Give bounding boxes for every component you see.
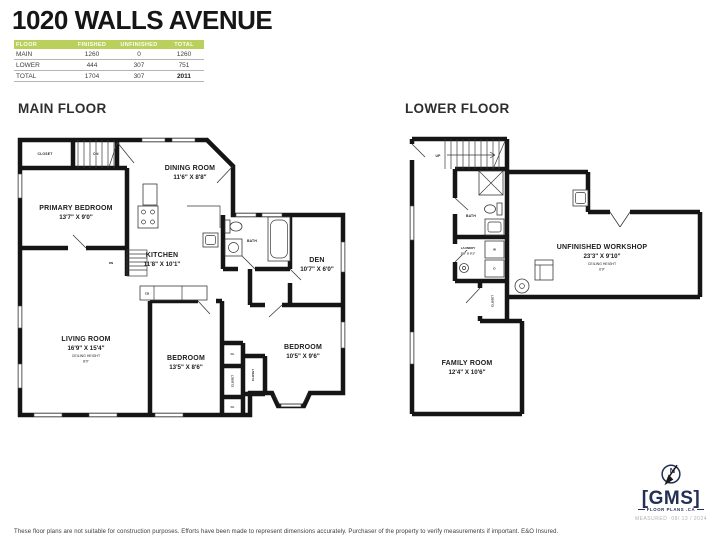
stairs-dn2-label: DN xyxy=(109,261,113,265)
area-table-header-row: FLOOR FINISHED UNFINISHED TOTAL xyxy=(14,40,204,49)
bedroom1-name: BEDROOM xyxy=(167,355,205,362)
logo-bracket-left: [ xyxy=(642,488,649,509)
shower-icon xyxy=(479,171,503,195)
bath-label: BATH xyxy=(247,239,257,243)
table-row-total: TOTAL 1704 307 2011 xyxy=(14,71,204,82)
primary-bedroom-dims: 13'7" X 9'0" xyxy=(59,214,93,221)
floor-plan-page: 1020 WALLS AVENUE FLOOR FINISHED UNFINIS… xyxy=(0,0,720,556)
bath-sink-icon xyxy=(225,239,242,256)
disclaimer-text: These floor plans are not suitable for c… xyxy=(14,529,558,535)
logo-wordmark: [GMS] xyxy=(628,490,714,507)
cell-total: 2011 xyxy=(164,71,204,82)
main-floor-plan: CLOSET DN DINING ROOM 11'6" X 8'8" PRIMA… xyxy=(14,136,350,422)
measured-label: MEASURED xyxy=(635,516,667,522)
logo-tagline-text: FLOOR PLANS .CA xyxy=(647,507,695,512)
bedroom2-dims: 10'5" X 9'6" xyxy=(286,353,320,360)
bedroom2-name: BEDROOM xyxy=(284,344,322,351)
main-floor-heading: MAIN FLOOR xyxy=(18,101,107,116)
cell-unfinished: 0 xyxy=(114,49,164,60)
workshop-dims: 23'3" X 9'10" xyxy=(583,253,620,260)
cell-unfinished: 307 xyxy=(114,71,164,82)
dining-room-name: DINING ROOM xyxy=(165,165,215,172)
closet-right-label: CLOSET xyxy=(251,369,255,381)
lower-closet-label: CLOSET xyxy=(491,295,495,307)
table-row-main: MAIN 1260 0 1260 xyxy=(14,49,204,60)
main-floor-labels: CLOSET DN DINING ROOM 11'6" X 8'8" PRIMA… xyxy=(38,152,334,409)
bay-window xyxy=(274,395,308,404)
cell-floor: MAIN xyxy=(14,49,70,60)
column-header-floor: FLOOR xyxy=(14,40,70,49)
furnace-icon xyxy=(535,260,553,280)
closet-left-label: CLOSET xyxy=(231,375,235,387)
stairs-up-label: UP xyxy=(435,154,441,158)
kitchen-dims: 11'8" X 10'1" xyxy=(144,261,181,268)
area-table: FLOOR FINISHED UNFINISHED TOTAL MAIN 126… xyxy=(14,40,204,82)
laundry-tub-icon xyxy=(460,264,469,273)
page-title: 1020 WALLS AVENUE xyxy=(12,5,272,36)
cl-bottom-label: CL xyxy=(231,405,235,409)
washer-label: W xyxy=(493,248,496,252)
toilet-icon xyxy=(225,220,242,233)
laundry-name: LAUNDRY xyxy=(461,246,476,250)
cell-finished: 444 xyxy=(70,60,114,71)
column-header-finished: FINISHED xyxy=(70,40,114,49)
family-room-name: FAMILY ROOM xyxy=(442,360,493,367)
primary-bedroom-name: PRIMARY BEDROOM xyxy=(39,205,112,212)
stove-icon xyxy=(138,184,158,228)
water-heater-icon xyxy=(515,279,529,293)
cell-floor: TOTAL xyxy=(14,71,70,82)
workshop-name: UNFINISHED WORKSHOP xyxy=(557,244,648,251)
cell-total: 751 xyxy=(164,60,204,71)
living-ceiling-label: CEILING HEIGHT xyxy=(72,354,101,358)
living-room-dims: 16'9" X 15'4" xyxy=(67,345,104,352)
main-floor-walls xyxy=(20,140,343,415)
cell-finished: 1704 xyxy=(70,71,114,82)
lower-stairs-up-icon xyxy=(445,139,505,169)
cell-unfinished: 307 xyxy=(114,60,164,71)
column-header-total: TOTAL xyxy=(164,40,204,49)
bedroom1-dims: 13'5" X 8'6" xyxy=(169,364,203,371)
lower-sink-icon xyxy=(485,219,504,235)
measured-line: MEASURED08/ 13 / 2024 xyxy=(628,516,714,522)
lower-floor-plan: UP BATH LAUNDRY 5'8" X 5'1" W D CLOSET U… xyxy=(405,136,705,422)
closet-label: CLOSET xyxy=(38,152,54,156)
kitchen-name: KITCHEN xyxy=(146,252,179,259)
measured-date: 08/ 13 / 2024 xyxy=(671,516,707,522)
lower-toilet-icon xyxy=(485,203,503,215)
living-ceiling-value: 8'0" xyxy=(83,360,90,364)
lower-bath-label: BATH xyxy=(466,214,476,218)
bathtub-icon xyxy=(268,217,290,261)
workshop-sink-icon xyxy=(573,190,588,206)
stairs-dn-label: DN xyxy=(93,152,99,156)
den-dims: 10'7" X 6'0" xyxy=(300,266,334,273)
cl-top-label: CL xyxy=(231,352,235,356)
workshop-ceiling-value: 6'9" xyxy=(599,268,606,272)
den-name: DEN xyxy=(309,257,324,264)
column-header-unfinished: UNFINISHED xyxy=(114,40,164,49)
cell-floor: LOWER xyxy=(14,60,70,71)
lower-floor-heading: LOWER FLOOR xyxy=(405,101,510,116)
table-row-lower: LOWER 444 307 751 xyxy=(14,60,204,71)
living-room-name: LIVING ROOM xyxy=(61,336,110,343)
laundry-dims: 5'8" X 5'1" xyxy=(461,252,476,256)
gms-logo: N [GMS] FLOOR PLANS .CA MEASURED08/ 13 /… xyxy=(628,461,714,522)
family-room-dims: 12'4" X 10'6" xyxy=(448,369,485,376)
logo-name-text: GMS xyxy=(649,488,694,509)
logo-bracket-right: ] xyxy=(693,488,700,509)
dining-room-dims: 11'6" X 8'8" xyxy=(173,174,206,181)
kitchen-sink-icon xyxy=(203,233,218,247)
compass-icon: N xyxy=(657,461,685,489)
cell-finished: 1260 xyxy=(70,49,114,60)
workshop-ceiling-label: CEILING HEIGHT xyxy=(588,262,617,266)
cell-total: 1260 xyxy=(164,49,204,60)
